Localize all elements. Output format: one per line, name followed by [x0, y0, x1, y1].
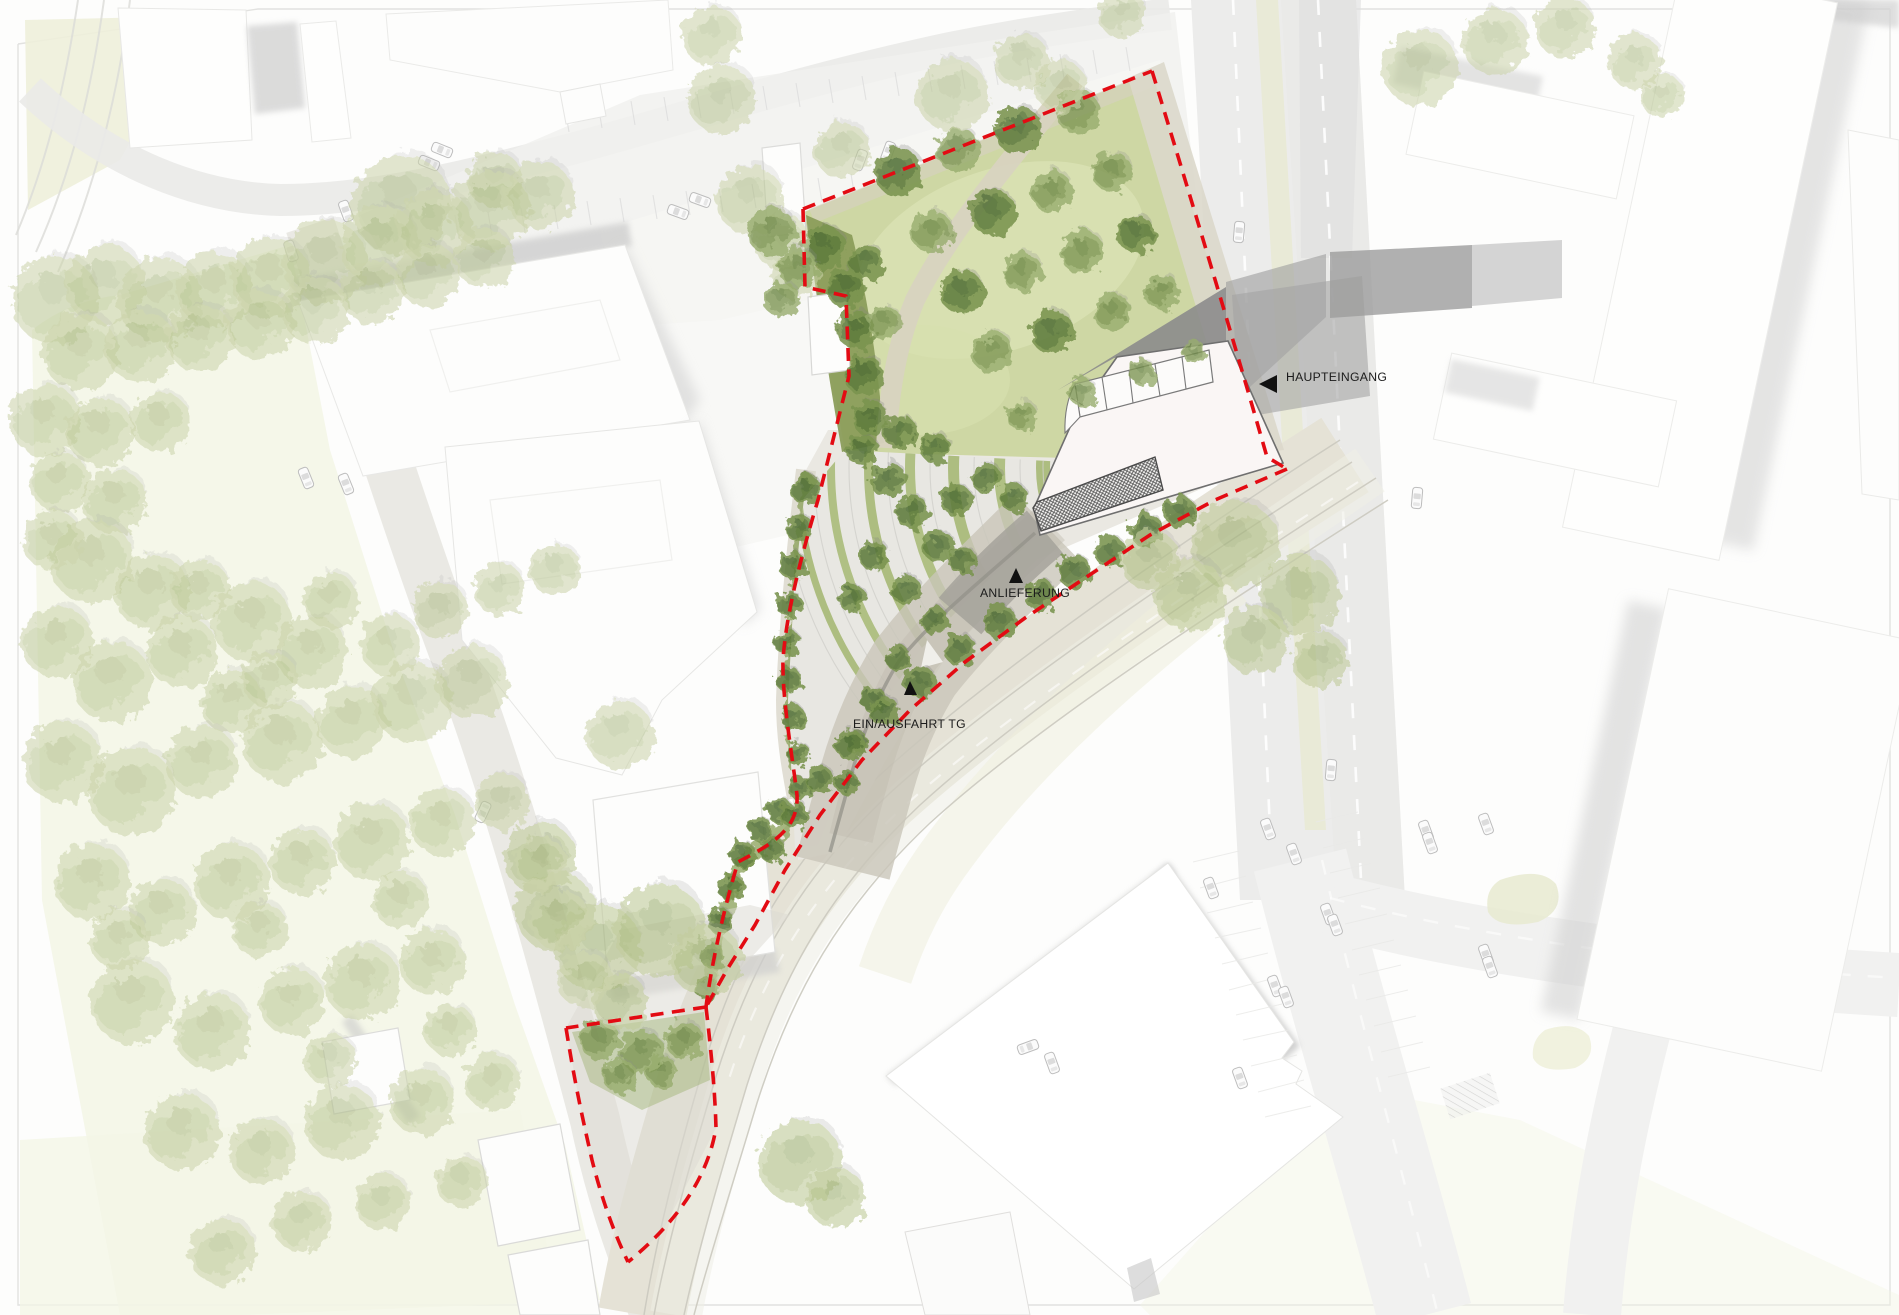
- svg-text:ANLIEFERUNG: ANLIEFERUNG: [980, 586, 1070, 600]
- svg-text:HAUPTEINGANG: HAUPTEINGANG: [1286, 370, 1387, 384]
- svg-text:EIN/AUSFAHRT TG: EIN/AUSFAHRT TG: [853, 717, 966, 731]
